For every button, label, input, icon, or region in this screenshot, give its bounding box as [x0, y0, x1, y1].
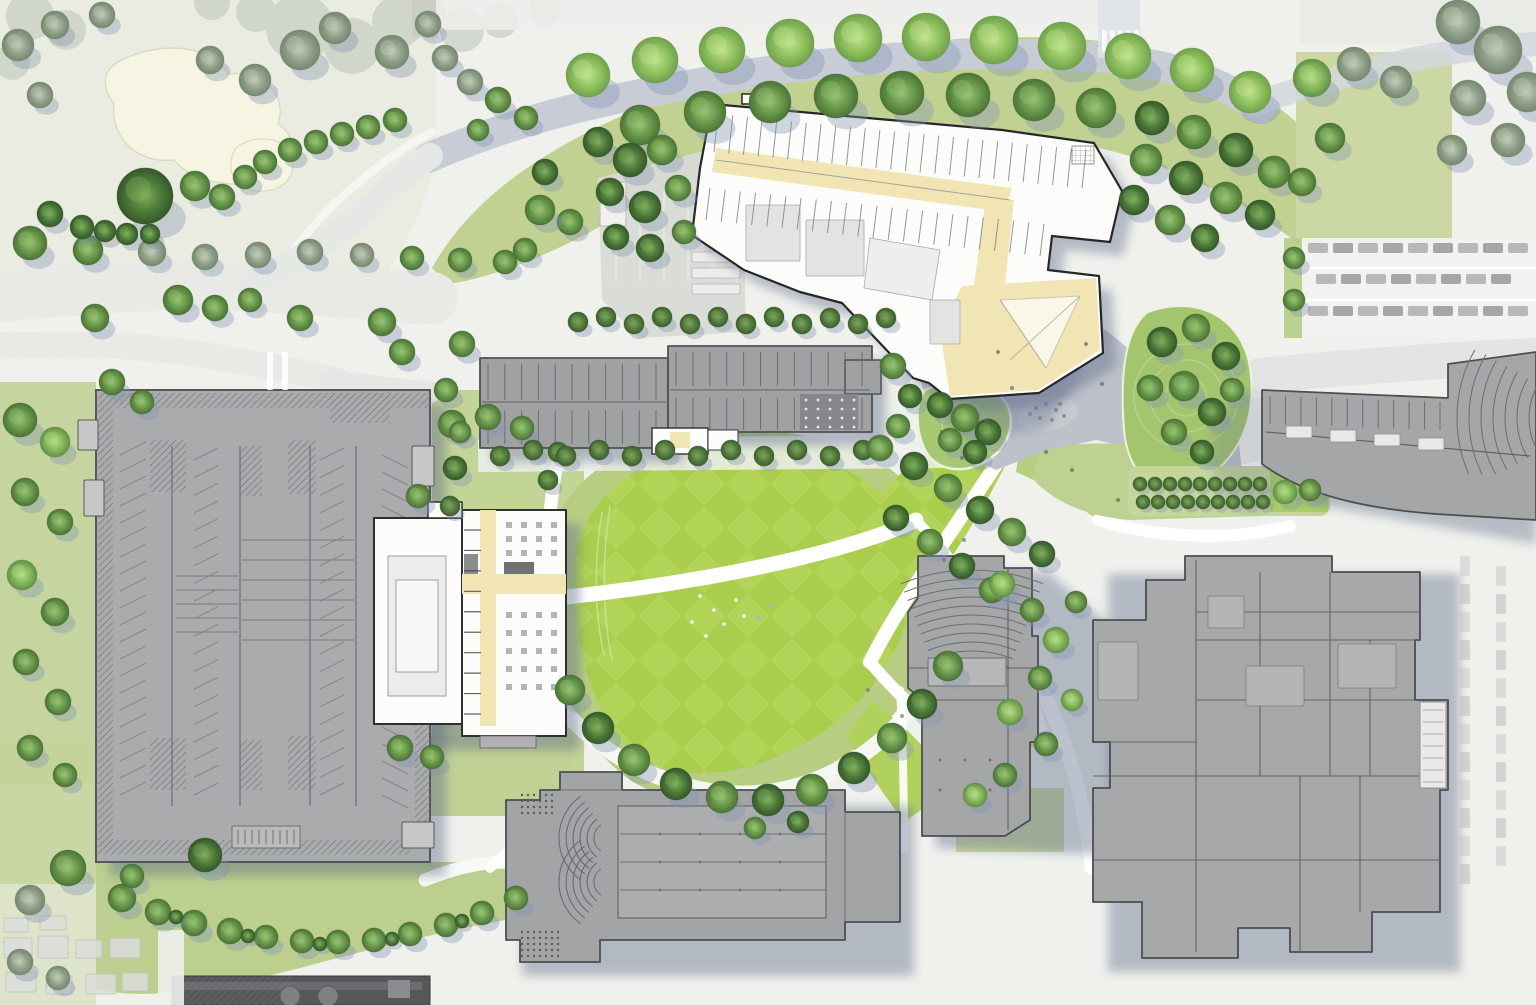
east-complex-annex [1420, 702, 1446, 788]
classroom-corridor-v [480, 510, 496, 726]
classroom-dark-room [504, 562, 534, 574]
site-plan-stage [0, 0, 1536, 1005]
lab-bar-west [480, 358, 668, 448]
site-plan-map [0, 0, 1536, 1005]
music-building-courts [1072, 146, 1094, 164]
context-road-bottomleft [158, 930, 184, 1005]
classroom-block-east [462, 510, 566, 736]
rooftop-unit [388, 980, 410, 998]
lab-bar-stub [845, 360, 881, 394]
recital-hall-stage [396, 580, 438, 672]
rooftop-hatch [172, 976, 292, 1005]
east-complex-building [1093, 556, 1448, 958]
classroom-south-annex [480, 736, 536, 748]
